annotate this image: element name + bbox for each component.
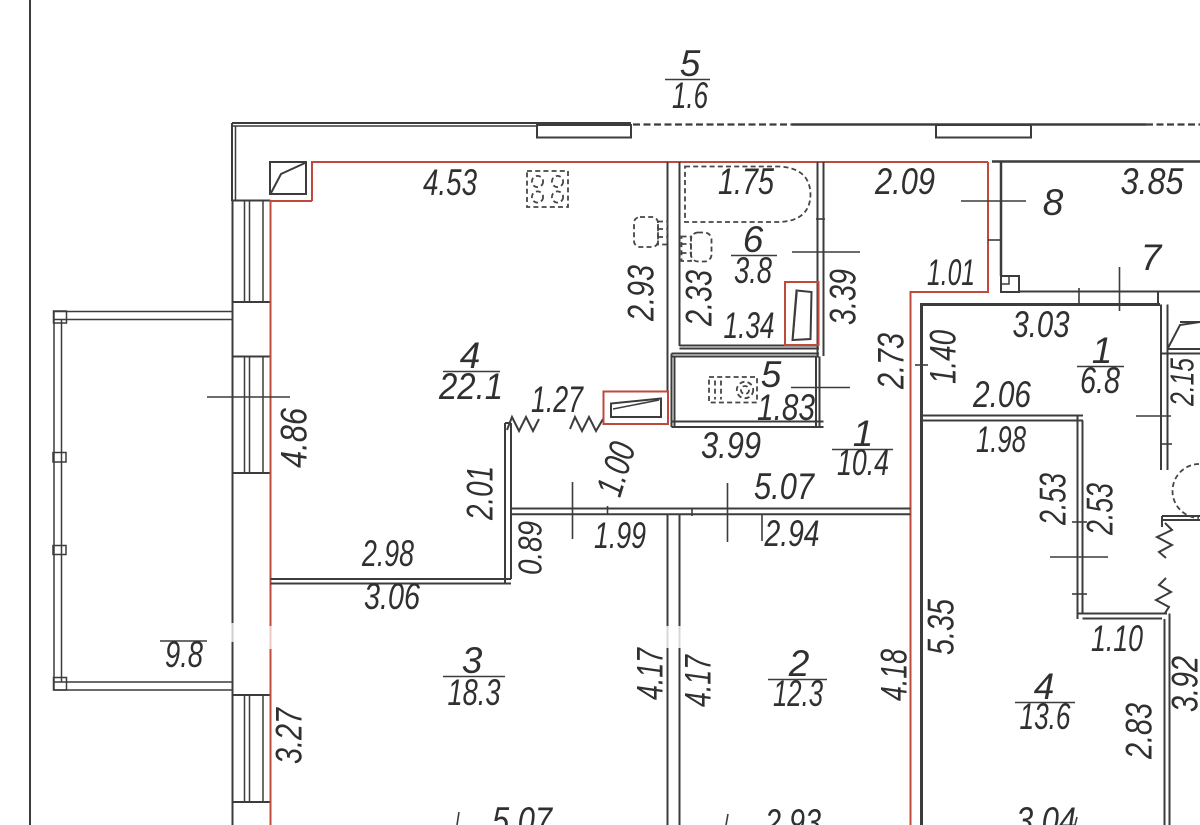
svg-text:3.39: 3.39	[823, 269, 864, 325]
svg-text:1.75: 1.75	[718, 161, 774, 202]
svg-text:2.73: 2.73	[871, 333, 912, 390]
svg-text:8: 8	[1043, 182, 1064, 223]
svg-text:22.1: 22.1	[438, 366, 503, 407]
svg-text:3.92: 3.92	[1165, 656, 1200, 712]
svg-text:6.8: 6.8	[1080, 360, 1120, 401]
svg-text:1.83: 1.83	[757, 387, 815, 428]
svg-text:2.83: 2.83	[1119, 703, 1160, 760]
svg-text:2.93: 2.93	[764, 802, 821, 825]
svg-text:1.34: 1.34	[724, 305, 775, 346]
svg-text:9.8: 9.8	[165, 634, 203, 675]
svg-text:3.03: 3.03	[1013, 304, 1070, 345]
svg-text:1.10: 1.10	[1091, 618, 1143, 659]
svg-text:2.94: 2.94	[764, 513, 820, 554]
svg-text:18.3: 18.3	[448, 672, 501, 713]
svg-text:2.98: 2.98	[361, 533, 414, 574]
svg-text:2.93: 2.93	[621, 265, 662, 322]
svg-text:5.07: 5.07	[754, 466, 815, 507]
svg-text:3.27: 3.27	[269, 707, 310, 764]
svg-text:12.3: 12.3	[773, 673, 823, 714]
svg-text:0.89: 0.89	[512, 521, 549, 575]
svg-text:3.04: 3.04	[1016, 800, 1076, 825]
svg-text:10.4: 10.4	[837, 442, 889, 483]
svg-text:2.09: 2.09	[874, 161, 935, 202]
svg-text:7: 7	[1141, 237, 1163, 278]
svg-text:2.06: 2.06	[972, 374, 1031, 415]
svg-text:3.85: 3.85	[1121, 161, 1184, 202]
svg-text:2.15: 2.15	[1164, 358, 1200, 407]
svg-text:2.01: 2.01	[460, 466, 501, 521]
svg-text:1.98: 1.98	[976, 419, 1026, 460]
svg-text:3.99: 3.99	[701, 425, 761, 466]
svg-text:3.06: 3.06	[364, 576, 420, 617]
svg-text:1.99: 1.99	[594, 515, 646, 556]
svg-text:2.33: 2.33	[679, 270, 720, 327]
svg-text:2.53: 2.53	[1080, 483, 1121, 536]
svg-text:4.18: 4.18	[874, 649, 915, 701]
svg-text:4.17: 4.17	[678, 654, 719, 707]
svg-text:2.53: 2.53	[1033, 473, 1074, 526]
svg-text:4.53: 4.53	[423, 162, 477, 203]
svg-text:3.8: 3.8	[734, 250, 772, 291]
svg-text:5.35: 5.35	[921, 599, 962, 655]
svg-text:1.27: 1.27	[531, 379, 584, 420]
svg-text:5.07: 5.07	[492, 800, 553, 825]
svg-text:4.17: 4.17	[630, 647, 671, 700]
svg-text:4.86: 4.86	[274, 408, 315, 468]
svg-text:13.6: 13.6	[1020, 696, 1071, 737]
svg-text:1.40: 1.40	[923, 330, 964, 384]
svg-text:1.01: 1.01	[927, 252, 975, 293]
svg-text:1.6: 1.6	[672, 75, 708, 116]
svg-text:1.00: 1.00	[589, 437, 644, 501]
